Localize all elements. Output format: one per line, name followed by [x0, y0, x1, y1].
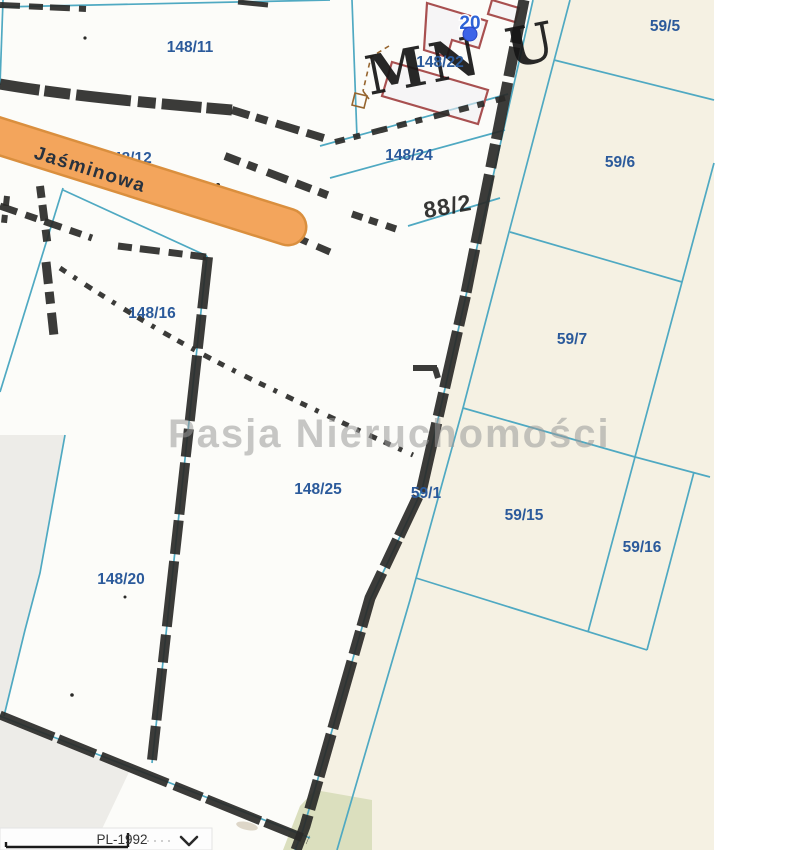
parcel-label-148-11: 148/11: [167, 39, 214, 56]
parcel-label-59-7: 59/7: [557, 331, 587, 348]
parcel-label-59-16: 59/16: [623, 539, 662, 556]
no-data-strip: [714, 0, 799, 850]
parcel-label-59-15: 59/15: [505, 507, 544, 524]
parcel-label-59-6: 59/6: [605, 154, 636, 171]
marker-dot-icon[interactable]: [463, 27, 477, 41]
parcel-label-59-5: 59/5: [650, 18, 681, 35]
parcel-label-59-1: 59/1: [411, 485, 442, 502]
projection-label: PL-1992: [96, 832, 147, 847]
parcel-label-148-22: 148/22: [416, 54, 463, 71]
map-viewport[interactable]: 148/12 MN U 88/2: [0, 0, 799, 850]
watermark: Pasja Nieruchomości: [168, 412, 611, 456]
bottom-bar: PL-1992: [0, 828, 212, 850]
parcel-label-148-16: 148/16: [128, 305, 176, 322]
parcel-label-148-25: 148/25: [294, 481, 342, 498]
parcel-label-148-20: 148/20: [97, 571, 144, 588]
map-canvas[interactable]: 148/12 MN U 88/2: [0, 0, 799, 850]
parcel-label-148-24: 148/24: [385, 147, 433, 164]
